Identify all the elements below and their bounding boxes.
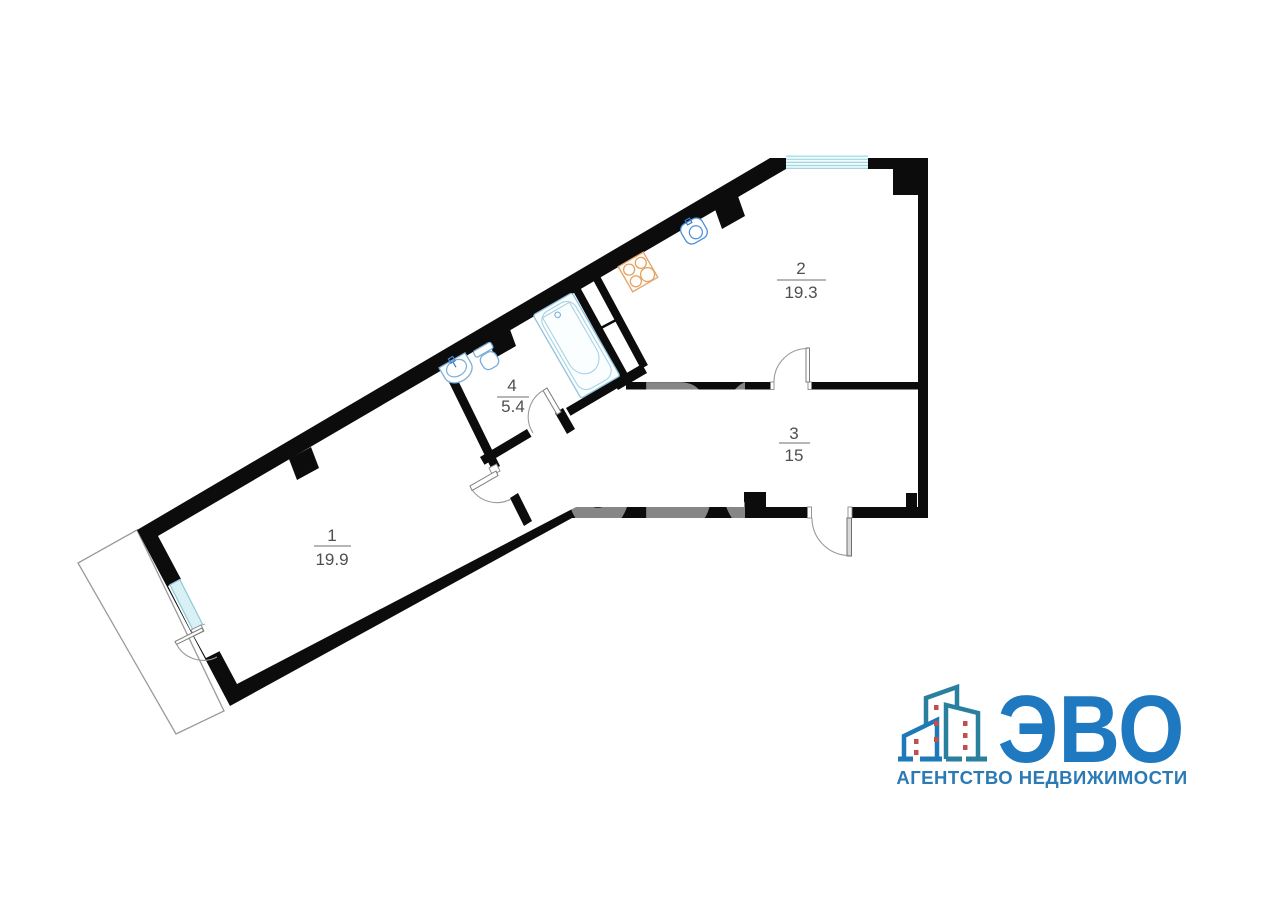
svg-text:1: 1 (327, 526, 336, 545)
svg-text:3: 3 (789, 424, 798, 443)
svg-text:АГЕНТСТВО НЕДВИЖИМОСТИ: АГЕНТСТВО НЕДВИЖИМОСТИ (896, 767, 1187, 788)
svg-text:2: 2 (796, 259, 805, 278)
svg-text:19.9: 19.9 (315, 550, 348, 569)
svg-text:4: 4 (507, 376, 516, 395)
svg-text:5.4: 5.4 (501, 397, 525, 416)
svg-text:15: 15 (785, 446, 804, 465)
svg-text:19.3: 19.3 (784, 283, 817, 302)
